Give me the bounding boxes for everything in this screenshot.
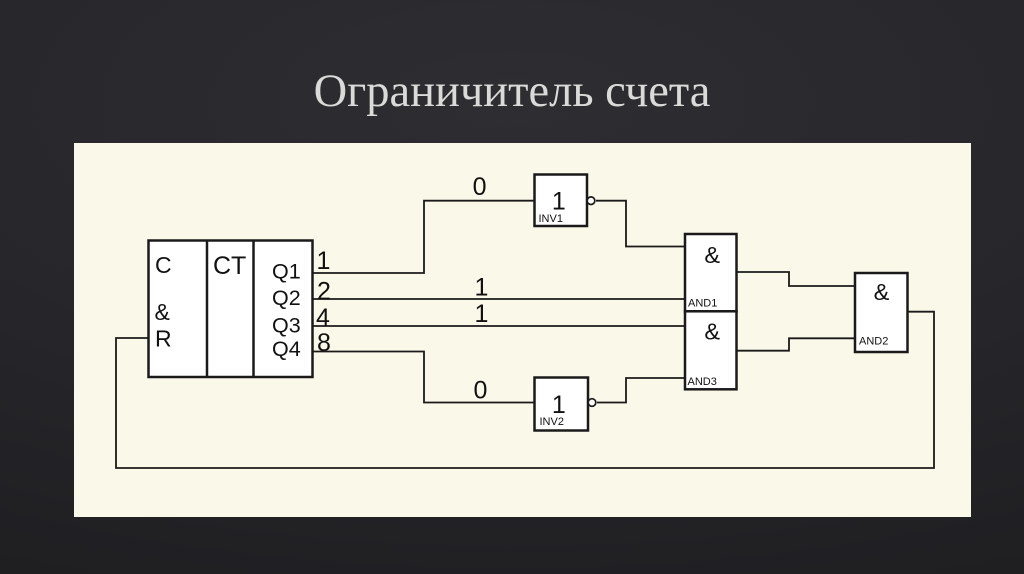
svg-text:C: C	[155, 252, 172, 278]
svg-text:AND2: AND2	[859, 336, 888, 348]
svg-text:INV1: INV1	[539, 213, 563, 225]
svg-text:&: &	[704, 319, 720, 345]
svg-text:0: 0	[474, 377, 488, 405]
svg-text:&: &	[155, 299, 170, 325]
svg-text:&: &	[874, 279, 890, 305]
svg-text:1: 1	[317, 247, 331, 275]
svg-text:AND1: AND1	[688, 298, 717, 310]
svg-text:8: 8	[317, 329, 331, 357]
svg-text:1: 1	[552, 391, 566, 419]
svg-text:CT: CT	[213, 252, 246, 280]
svg-text:Q3: Q3	[272, 314, 301, 338]
svg-text:Q2: Q2	[272, 286, 301, 310]
svg-text:1: 1	[474, 300, 488, 328]
svg-text:2: 2	[317, 278, 331, 306]
svg-text:INV2: INV2	[540, 416, 564, 428]
svg-text:R: R	[155, 326, 172, 352]
svg-text:&: &	[704, 242, 720, 268]
svg-text:4: 4	[316, 304, 330, 332]
svg-text:1: 1	[552, 188, 566, 216]
svg-text:1: 1	[474, 273, 488, 301]
svg-text:Q4: Q4	[272, 337, 301, 361]
svg-text:0: 0	[473, 173, 487, 201]
svg-text:AND3: AND3	[688, 376, 717, 388]
svg-text:Q1: Q1	[272, 260, 301, 284]
